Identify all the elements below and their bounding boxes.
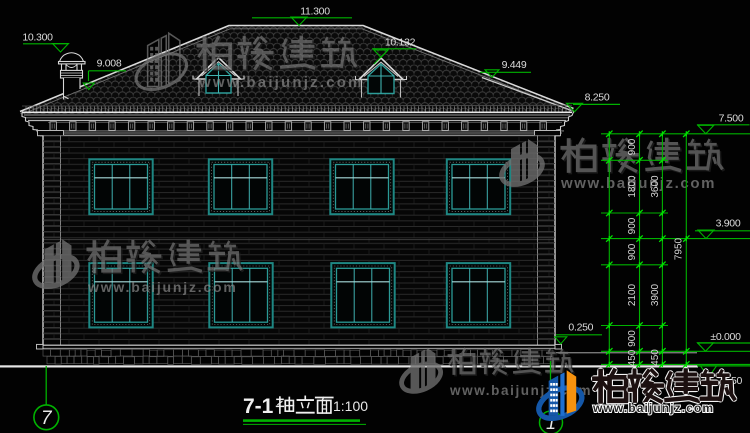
svg-text:www.baijunjz.com: www.baijunjz.com	[560, 175, 716, 192]
svg-text:10.132: 10.132	[385, 37, 416, 49]
svg-text:8.250: 8.250	[585, 92, 610, 104]
svg-text:1:100: 1:100	[333, 398, 368, 414]
svg-text:900: 900	[627, 217, 638, 234]
svg-text:0.250: 0.250	[568, 322, 593, 334]
svg-text:9.449: 9.449	[502, 59, 527, 71]
svg-text:2100: 2100	[627, 283, 638, 306]
svg-text:3900: 3900	[650, 283, 661, 306]
svg-text:11.300: 11.300	[300, 6, 330, 18]
svg-text:7-1: 7-1	[243, 395, 274, 418]
svg-text:7950: 7950	[674, 237, 685, 260]
svg-text:9.008: 9.008	[97, 58, 122, 70]
svg-text:±0.000: ±0.000	[710, 331, 741, 343]
svg-text:1800: 1800	[627, 175, 638, 198]
svg-text:7: 7	[41, 408, 53, 429]
svg-text:900: 900	[627, 330, 638, 347]
svg-text:3600: 3600	[650, 175, 661, 198]
svg-text:450: 450	[627, 349, 638, 366]
svg-text:www.baijunjz.com: www.baijunjz.com	[87, 279, 238, 295]
svg-text:www.baijunjz.com: www.baijunjz.com	[198, 74, 364, 91]
svg-text:7.500: 7.500	[719, 113, 744, 125]
svg-text:900: 900	[627, 138, 638, 155]
svg-text:www.baijunjz.com: www.baijunjz.com	[592, 401, 714, 415]
svg-text:450: 450	[650, 349, 661, 366]
svg-text:3.900: 3.900	[716, 218, 741, 230]
svg-text:10.300: 10.300	[22, 32, 53, 44]
svg-text:900: 900	[627, 243, 638, 260]
